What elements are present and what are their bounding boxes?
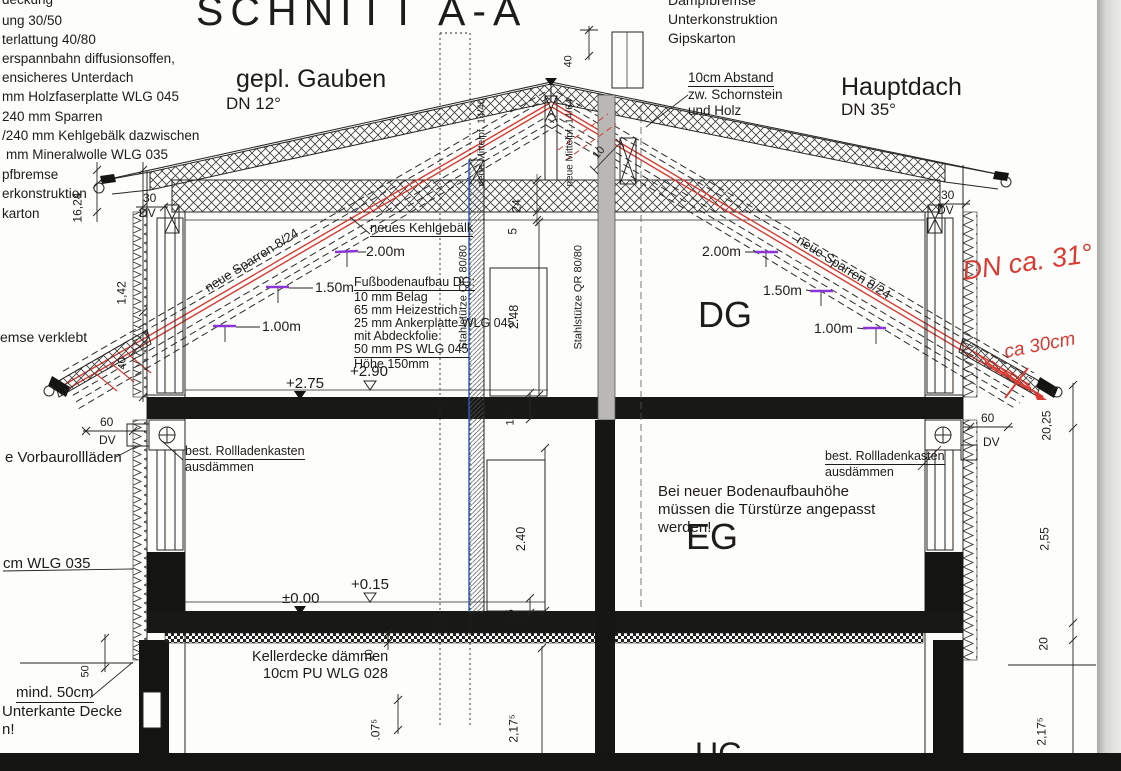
note-abstand-line: und Holz <box>688 104 741 118</box>
note-mind50-line: n! <box>2 722 15 738</box>
dim-right-255: 2,55 <box>1038 527 1051 550</box>
dim-slab-eg-15: 15 <box>505 609 517 621</box>
note-tuersturz-line: müssen die Türstürze angepasst <box>658 502 875 518</box>
note-rollladen-right-line: best. Rollladenkasten <box>825 450 945 465</box>
note-roof-buildup-line: pfbremse <box>2 168 58 182</box>
dim-left-40: 40 <box>117 357 129 369</box>
dim-roof-right-30: 30 <box>941 189 954 202</box>
dim-room-dg: 2.48 <box>508 305 521 329</box>
drawing-linework <box>0 0 1121 771</box>
dim-right-20: 20 <box>1037 637 1050 650</box>
height-mark: 1.50m <box>763 283 802 298</box>
label-stahlstuetze-right: Stahlstütze QR 80/80 <box>573 245 585 350</box>
dim-roof-left-30: 30 <box>143 192 156 205</box>
note-vorbau: e Vorbaurollläden <box>5 450 122 466</box>
gauben-dn: DN 12° <box>226 95 281 113</box>
dim-ceiling-24: 24 <box>510 199 523 212</box>
note-roof-buildup-line: mm Holzfaserplatte WLG 045 <box>2 90 179 104</box>
note-tuersturz-line: werden! <box>658 520 711 536</box>
dim-right-2025: 20,25 <box>1040 411 1053 441</box>
scan-paper-edge <box>1097 0 1121 753</box>
hauptdach-dn: DN 35° <box>841 101 896 119</box>
note-roof-buildup-line: ung 30/50 <box>2 14 62 28</box>
gauben-title: gepl. Gauben <box>236 66 386 92</box>
height-mark: 1.00m <box>262 319 301 334</box>
dim-left-50: 50 <box>80 665 92 677</box>
note-wlg035: cm WLG 035 <box>3 556 91 572</box>
note-roof-buildup-line: 240 mm Sparren <box>2 110 103 124</box>
room-dg: DG <box>698 296 752 334</box>
note-ceiling-line: Unterkonstruktion <box>668 12 778 27</box>
height-mark: 1.50m <box>315 280 354 295</box>
level-dg-fin: +2.90 <box>350 364 388 380</box>
note-rollladen-right-line: ausdämmen <box>825 466 894 479</box>
dim-wall-right-60: 60 <box>981 412 994 425</box>
dim-bottom-075: .07⁵ <box>369 719 382 741</box>
note-roof-buildup-line: karton <box>2 207 40 221</box>
note-roof-buildup-line: deckung <box>2 0 53 7</box>
dim-wall-right-dv: DV <box>983 436 1000 449</box>
dim-chimney-top-40: 40 <box>563 55 575 67</box>
note-keller-line: 10cm PU WLG 028 <box>263 667 388 682</box>
dim-keller-10: 10 <box>364 649 376 661</box>
dim-bottom-2175: 2,17⁵ <box>507 714 520 742</box>
note-kehlgebaelk: neues Kehlgebälk <box>370 221 473 237</box>
floor-buildup-line: 50 mm PS WLG 045 <box>354 343 469 358</box>
note-rollladen-left-line: best. Rollladenkasten <box>185 445 305 460</box>
level-eg-raw: ±0.00 <box>282 591 319 607</box>
section-title: SCHNITT A-A <box>196 0 527 33</box>
dim-slab-dg-15: 15 <box>505 413 517 425</box>
dim-ceiling-5: 5 <box>506 228 519 235</box>
note-tuersturz-line: Bei neuer Bodenaufbauhöhe <box>658 484 849 500</box>
dim-roof-right-dv: DV <box>937 204 954 217</box>
note-abstand-line: zw. Schornstein <box>688 88 783 102</box>
dim-wall-left-dv: DV <box>99 434 116 447</box>
note-verklebt: emse verklebt <box>0 330 87 345</box>
dim-wall-left-60: 60 <box>100 416 113 429</box>
note-ceiling-line: Dampfbremse <box>668 0 756 8</box>
scan-bottom-bar <box>0 753 1121 771</box>
note-mind50-line: Unterkante Decke <box>2 704 122 720</box>
note-roof-buildup-line: /240 mm Kehlgebälk dazwischen <box>2 129 199 143</box>
note-ceiling-line: Gipskarton <box>668 31 736 46</box>
dim-room-eg: 2.40 <box>515 527 528 551</box>
height-mark: 2.00m <box>702 244 741 259</box>
note-roof-buildup-line: mm Mineralwolle WLG 035 <box>6 148 168 162</box>
eaves <box>44 205 1062 398</box>
dim-roof-left-dv: DV <box>139 207 156 220</box>
note-mind50-line: mind. 50cm <box>16 685 94 703</box>
hauptdach-title: Hauptdach <box>841 74 962 100</box>
height-mark: 1.00m <box>814 321 853 336</box>
label-mittelpfette-right: neue Mittelpf. 14/64 <box>566 99 577 187</box>
note-roof-buildup-line: terlattung 40/80 <box>2 33 96 47</box>
note-rollladen-left-line: ausdämmen <box>185 461 254 474</box>
dim-left-16-24: 16,24 <box>71 193 84 223</box>
note-roof-buildup-line: erspannbahn diffusionsoffen, <box>2 52 175 66</box>
dim-right-2175: 2,17⁵ <box>1035 717 1048 745</box>
architectural-section-scan: SCHNITT A-A gepl. Gauben DN 12° Hauptdac… <box>0 0 1121 771</box>
level-eg-fin: +0.15 <box>351 577 389 593</box>
level-dg-raw: +2.75 <box>286 376 324 392</box>
note-roof-buildup-line: ensicheres Unterdach <box>2 71 133 85</box>
dim-left-1-42: 1,42 <box>115 281 128 304</box>
label-stahlstuetze-left: Stahlstütze QR 80/80 <box>458 245 470 350</box>
label-mittelpfette-left: neue Mittelpf. 14/40 <box>478 99 489 187</box>
note-abstand-line: 10cm Abstand <box>688 71 774 87</box>
height-mark: 2.00m <box>366 244 405 259</box>
